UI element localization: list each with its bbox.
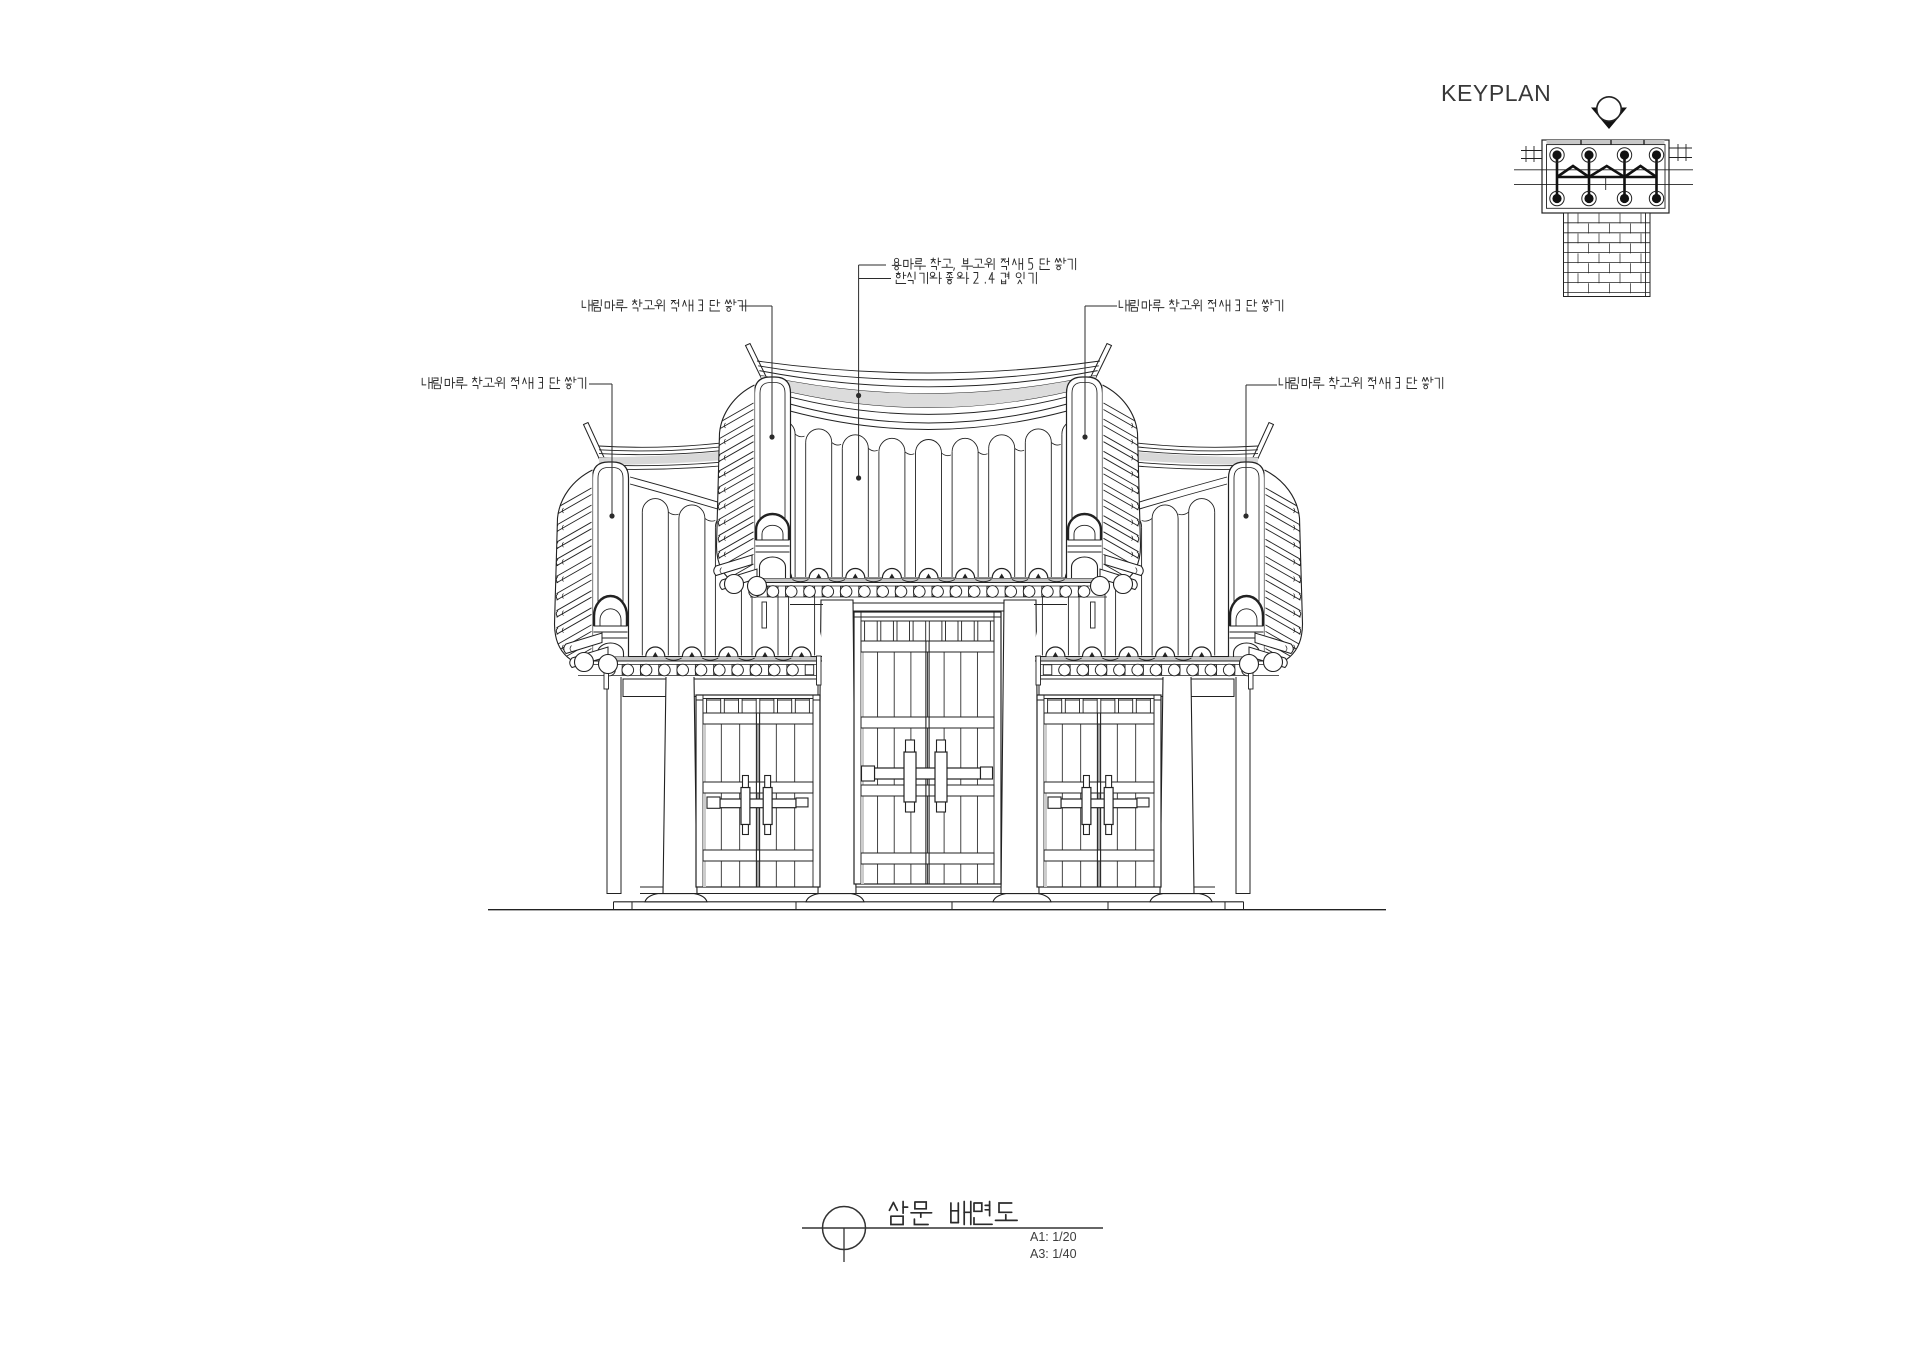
svg-text:A3: 1/40: A3: 1/40 xyxy=(1030,1247,1077,1261)
svg-text:A1: 1/20: A1: 1/20 xyxy=(1030,1230,1077,1244)
svg-text:KEYPLAN: KEYPLAN xyxy=(1441,80,1551,106)
